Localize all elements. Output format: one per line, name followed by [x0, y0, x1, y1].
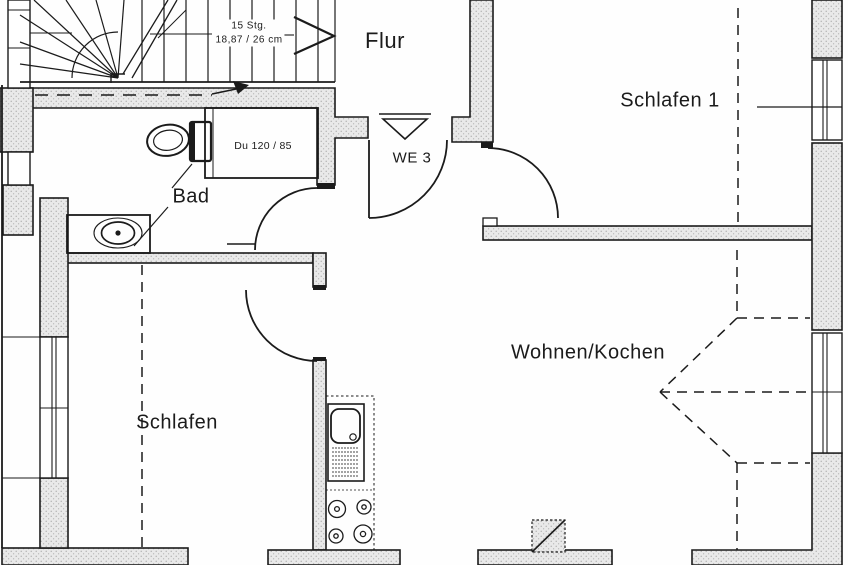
- toilet-fixture: [145, 122, 211, 161]
- wall-caps: [313, 142, 493, 361]
- room-label-bedroom1: Schlafen 1: [620, 90, 720, 113]
- stairs-annotation: 15 Stg. 18,87 / 26 cm: [213, 20, 284, 47]
- room-label-bedroom2: Schlafen: [136, 412, 218, 435]
- door-bedroom2: [246, 290, 317, 361]
- room-label-hall: Flur: [365, 28, 405, 54]
- walls: [0, 0, 842, 565]
- chimney: [532, 520, 565, 552]
- washbasin-fixture: [67, 215, 150, 253]
- shower-dimension-label: Du 120 / 85: [234, 140, 292, 152]
- entrance-triangle-icon: [379, 114, 431, 139]
- floor-plan: Flur Schlafen 1 Bad Schlafen Wohnen/Koch…: [0, 0, 848, 565]
- staircase: [20, 0, 335, 95]
- door-bedroom1: [488, 148, 558, 218]
- stairs-steps-count: 15 Stg.: [231, 21, 266, 32]
- stove-burners: [329, 500, 373, 543]
- floor-plan-linework: [0, 0, 848, 565]
- stairs-dimensions: 18,87 / 26 cm: [215, 34, 282, 45]
- window-mullions: [2, 10, 842, 478]
- doors: [227, 140, 558, 361]
- room-label-bath: Bad: [172, 186, 209, 209]
- kitchen-unit: [326, 396, 374, 550]
- unit-label: WE 3: [393, 150, 432, 167]
- door-bath: [227, 188, 317, 250]
- door-jamb-notch: [483, 218, 497, 226]
- kitchen-sink: [328, 404, 364, 481]
- room-label-living-kitchen: Wohnen/Kochen: [511, 342, 665, 365]
